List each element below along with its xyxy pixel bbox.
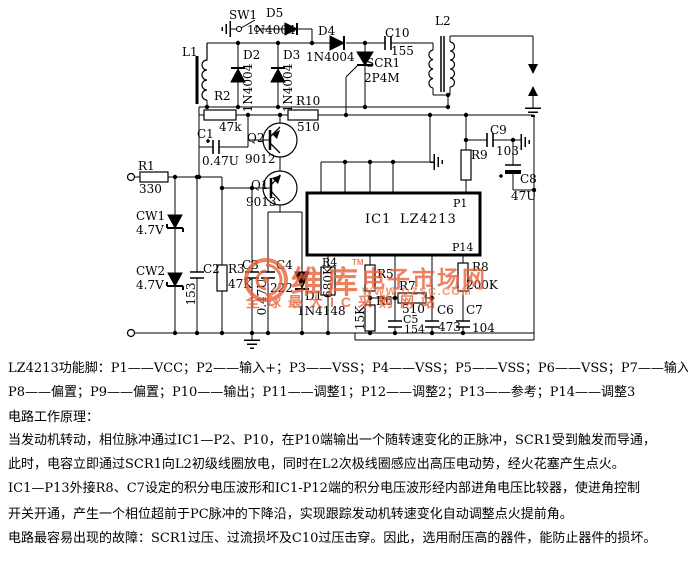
cdi-ignition-circuit-page: L1 SW1 D5 1N4004 D4 1N4004 C10 155 L2 SC… xyxy=(0,0,688,566)
label-d2-value: 1N4004 xyxy=(241,64,255,113)
label-c2: C2 xyxy=(203,263,220,276)
ground-rail xyxy=(244,340,260,348)
ignition-coil-l1 xyxy=(197,43,207,104)
label-c6-value: 473 xyxy=(438,321,461,334)
desc-line-4: 开关开通，产生一个相位超前于PC脉冲的下降沿，实现跟踪发动机转速变化自动调整点火… xyxy=(8,507,573,522)
ic1-pin-p1: P1 xyxy=(453,197,467,210)
spark-gap xyxy=(528,64,538,96)
label-r10: R10 xyxy=(296,95,320,108)
label-r5: R5 xyxy=(377,268,394,281)
ic1-ref: IC1 xyxy=(365,212,391,227)
label-d4-value: 1N4004 xyxy=(306,51,355,64)
desc-line-5: 电路最容易出现的故障：SCR1过压、过流损坏及C10过压击穿。因此，选用耐压高的… xyxy=(8,531,656,546)
label-q1: Q1 xyxy=(251,179,268,192)
label-c6: C6 xyxy=(437,304,454,317)
ic1-part: LZ4213 xyxy=(400,212,457,227)
label-r4-value: 680K xyxy=(321,266,335,298)
label-d1-value: 1N4148 xyxy=(297,305,346,318)
input-terminals xyxy=(128,174,135,337)
desc-line-2: 此时，电容立即通过SCR1向L2初级线圈放电，同时在L2次极线圈感应出高压电动势… xyxy=(8,457,625,472)
label-l2: L2 xyxy=(435,15,451,28)
label-c9: C9 xyxy=(490,124,507,137)
terminal-bottom xyxy=(128,330,135,337)
label-d4: D4 xyxy=(318,25,335,38)
ground-sw1 xyxy=(222,21,230,37)
terminal-top xyxy=(128,174,135,181)
label-c8-value: 47U xyxy=(511,190,536,203)
label-d5-value: 1N4004 xyxy=(247,24,296,37)
label-c2-value: 153 xyxy=(184,283,198,306)
label-r9: R9 xyxy=(471,149,488,162)
label-r6-value: 15K xyxy=(353,306,367,330)
label-d5: D5 xyxy=(266,7,283,20)
label-r2: R2 xyxy=(214,90,231,103)
label-d3: D3 xyxy=(283,49,300,62)
ic1-pin-p14: P14 xyxy=(452,241,473,254)
label-c4: C4 xyxy=(276,259,293,272)
label-c9-value: 103 xyxy=(496,145,519,158)
desc-line-pins-1: LZ4213功能脚：P1——VCC；P2——输入+；P3——VSS；P4——VS… xyxy=(8,361,688,376)
label-sw1: SW1 xyxy=(229,9,257,22)
label-q2: Q2 xyxy=(247,132,264,145)
label-c8: C8 xyxy=(520,173,537,186)
label-r7: R7 xyxy=(399,280,416,293)
label-scr1: SCR1 xyxy=(366,57,400,70)
label-q1-value: 9013 xyxy=(246,196,277,209)
desc-line-pins-2: P8——偏置；P9——偏置；P10——输出；P11——调整1；P12——调整2；… xyxy=(8,385,635,400)
zener-cw1 xyxy=(168,215,182,228)
label-d3-value: 1N4004 xyxy=(281,64,295,113)
label-c10: C10 xyxy=(385,27,409,40)
label-r8-value: 200K xyxy=(466,279,498,292)
label-r8: R8 xyxy=(472,261,489,274)
label-c7: C7 xyxy=(466,304,483,317)
label-c3-value: 0.47U xyxy=(255,279,269,316)
desc-line-principle-title: 电路工作原理： xyxy=(8,410,99,425)
label-c5-value: 154 xyxy=(404,323,425,336)
ground-c9 xyxy=(521,134,529,150)
label-c7-value: 104 xyxy=(472,322,495,335)
label-q2-value: 9012 xyxy=(245,153,276,166)
label-r10-value: 510 xyxy=(297,121,320,134)
label-d1: D1 xyxy=(305,290,322,303)
label-d2: D2 xyxy=(243,49,260,62)
label-cw1: CW1 xyxy=(136,210,165,223)
label-r6: R6 xyxy=(376,295,393,308)
label-c3: C3 xyxy=(242,259,259,272)
label-r3-value: 47K xyxy=(228,278,252,291)
label-c1: C1 xyxy=(197,128,214,141)
label-l1: L1 xyxy=(182,46,198,59)
label-r1-value: 330 xyxy=(139,183,162,196)
label-r2-value: 47k xyxy=(219,121,242,134)
label-scr1-value: 2P4M xyxy=(364,72,400,85)
label-r1: R1 xyxy=(138,160,155,173)
ground-bus xyxy=(430,154,442,170)
desc-line-3: IC1—P13外接R8、C7设定的积分电压波形和IC1-P12端的积分电压波形经… xyxy=(8,481,640,496)
label-cw2: CW2 xyxy=(136,265,165,278)
label-cw1-value: 4.7V xyxy=(136,224,164,237)
desc-line-1: 当发动机转动，相位脉冲通过IC1—P2、P10，在P10端输出一个随转速变化的正… xyxy=(8,433,656,448)
label-cw2-value: 4.7V xyxy=(136,279,164,292)
zener-cw2 xyxy=(168,273,182,286)
label-c4-value: 222 xyxy=(270,282,293,295)
label-c1-value: 0.47U xyxy=(202,155,239,168)
